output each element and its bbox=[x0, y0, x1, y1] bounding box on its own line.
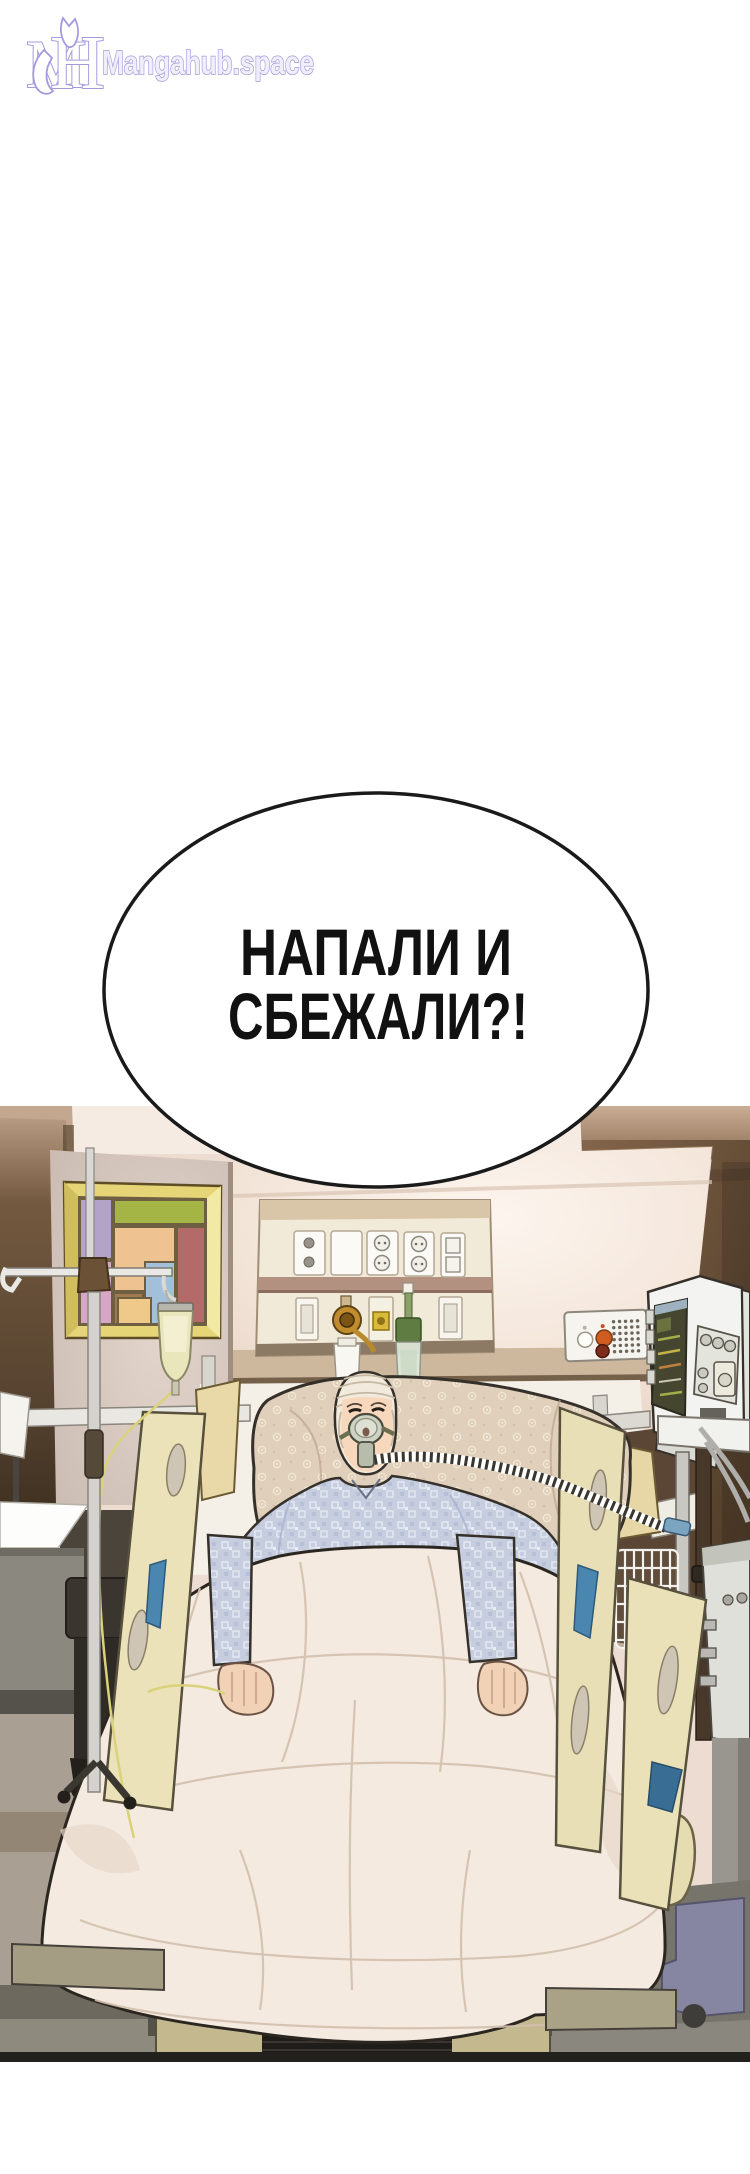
svg-text:СБЕЖАЛИ?!: СБЕЖАЛИ?! bbox=[228, 979, 528, 1053]
svg-text:НАПАЛИ И: НАПАЛИ И bbox=[240, 915, 512, 989]
svg-text:Mangahub.space: Mangahub.space bbox=[102, 44, 314, 81]
